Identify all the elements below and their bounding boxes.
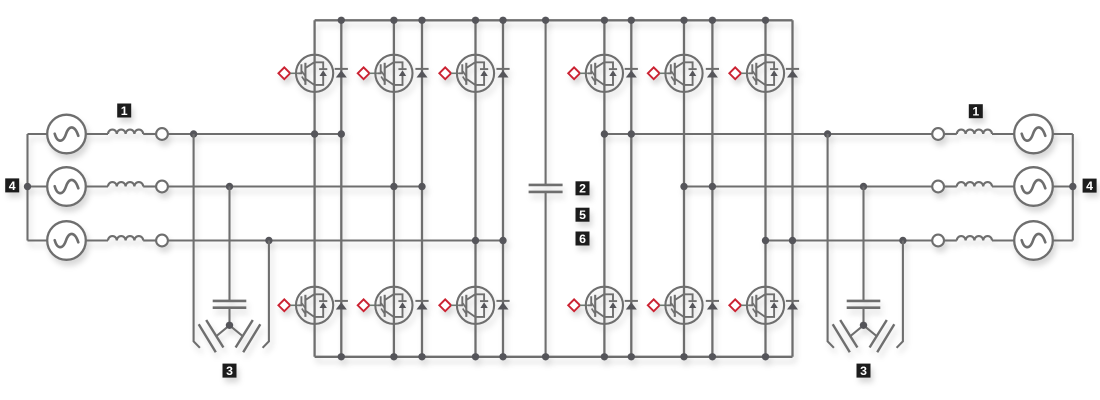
svg-text:1: 1 (121, 104, 128, 118)
svg-text:4: 4 (9, 179, 16, 193)
svg-text:2: 2 (579, 182, 586, 196)
svg-text:3: 3 (226, 364, 233, 378)
svg-text:5: 5 (579, 208, 586, 222)
svg-text:1: 1 (972, 105, 979, 119)
svg-text:6: 6 (579, 232, 586, 246)
svg-text:3: 3 (860, 364, 867, 378)
svg-text:4: 4 (1086, 179, 1093, 193)
